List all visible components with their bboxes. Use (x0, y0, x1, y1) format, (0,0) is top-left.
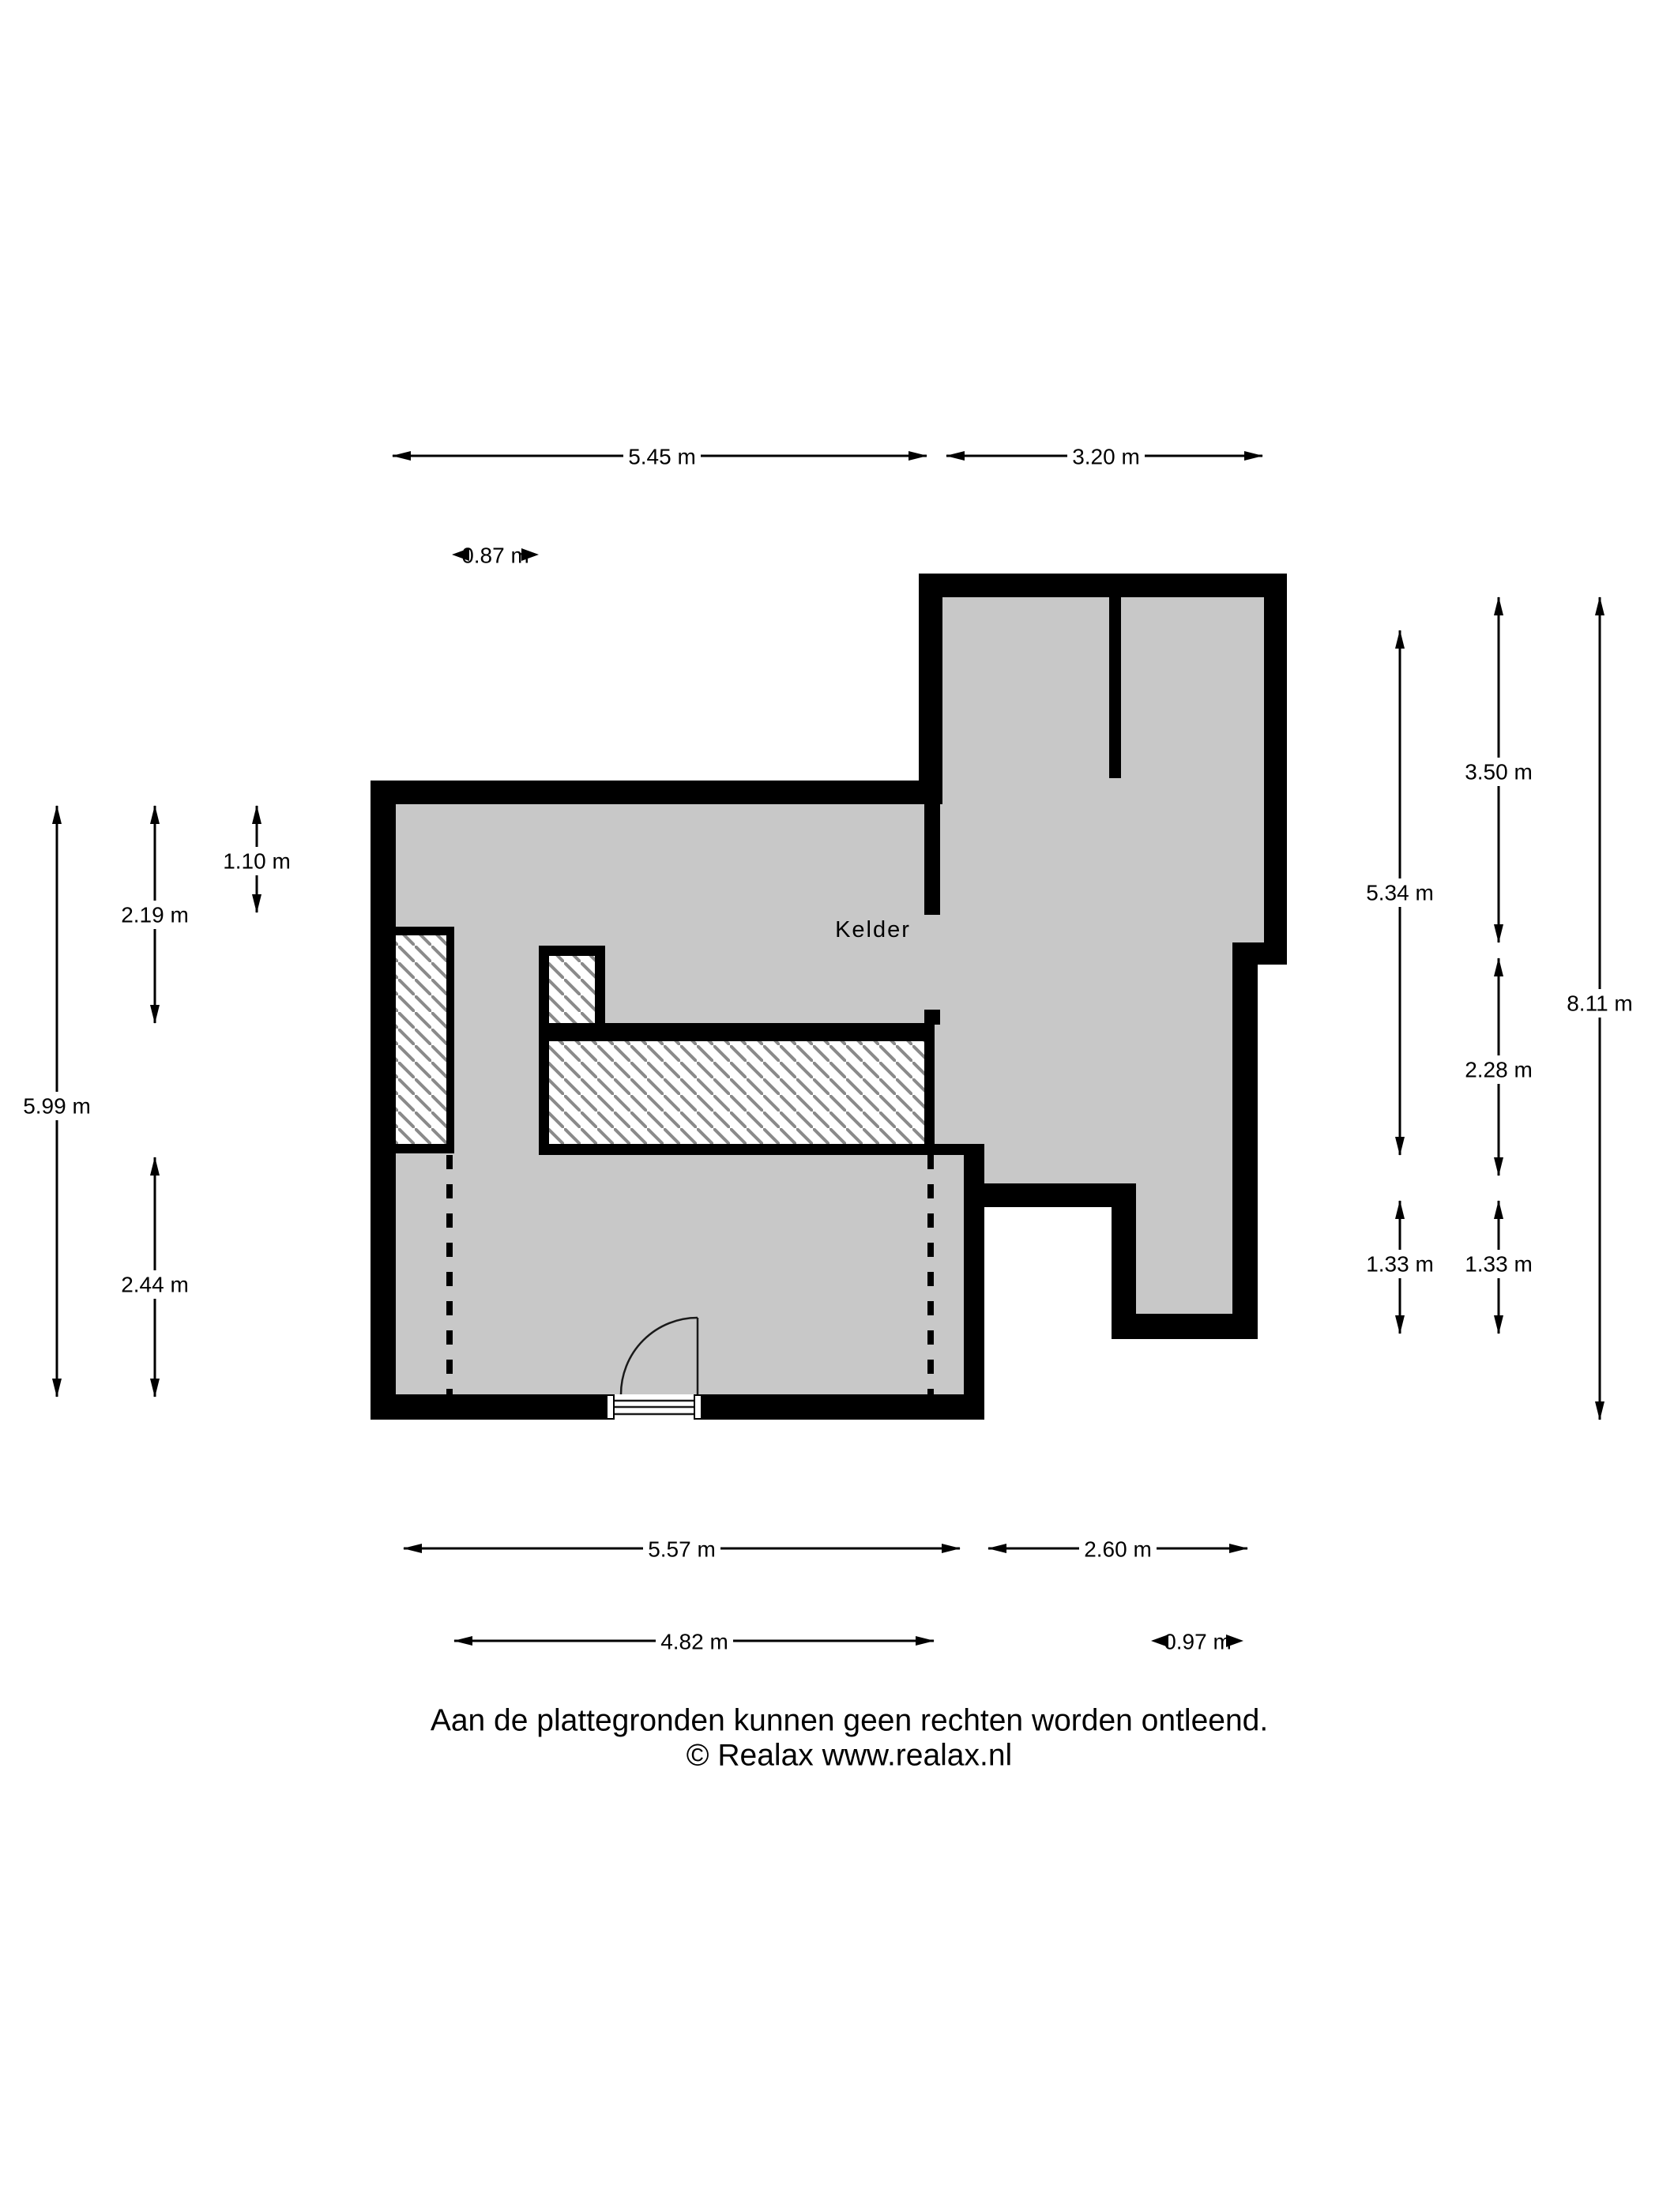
dimension-label: 5.34 m (1366, 881, 1434, 905)
dimension-label: 3.20 m (1072, 445, 1140, 469)
dimension-label: 2.28 m (1465, 1058, 1533, 1082)
hatch-stair-main (549, 1041, 924, 1144)
wall-main-bottom-left (371, 1394, 606, 1420)
wall-closet-bottom (396, 1144, 454, 1153)
footer-copyright: © Realax www.realax.nl (687, 1739, 1012, 1773)
wall-main-bottom-right (702, 1394, 984, 1420)
dimension-label: 2.19 m (121, 903, 189, 927)
wall-stair-right (924, 1023, 935, 1155)
dimension-label: 5.57 m (648, 1537, 716, 1562)
room-label: Kelder (835, 917, 911, 942)
door-jamb-left (607, 1395, 614, 1419)
wall-main-right (964, 1146, 984, 1420)
floor-right-room-upper (942, 597, 1264, 942)
dimension-label: 0.97 m (1164, 1630, 1232, 1654)
floorplan-canvas: Kelder 5.45 m 3.20 m 0.87 m 5.99 m 2.19 … (0, 0, 1659, 2212)
wall-main-top (371, 781, 942, 804)
dimension-label: 1.33 m (1366, 1252, 1434, 1277)
dimension-label: 1.33 m (1465, 1252, 1533, 1277)
wall-stairbox-right (595, 946, 605, 1023)
dimension-label: 3.50 m (1465, 760, 1533, 784)
dimension-gap-small: 0.87 m (452, 544, 539, 568)
hatch-left-closet (396, 935, 446, 1144)
wall-room-divider-stub (924, 1010, 940, 1025)
door-jamb-right (694, 1395, 702, 1419)
wall-stair-left (539, 1023, 549, 1155)
dimension-label: 0.87 m (461, 544, 529, 568)
wall-right-room-right-upper (1264, 574, 1287, 965)
footer-disclaimer: Aan de plattegronden kunnen geen rechten… (431, 1704, 1268, 1738)
wall-closet-top (396, 927, 454, 935)
wall-stair-top (539, 1023, 935, 1041)
wall-closet-right (446, 927, 454, 1153)
wall-extension-left (1112, 1183, 1136, 1339)
wall-right-room-right-lower (1232, 942, 1258, 1339)
dimension-bottom-small: 0.97 m (1151, 1630, 1243, 1654)
wall-stair-bottom (539, 1144, 984, 1155)
floorplan-page: Kelder 5.45 m 3.20 m 0.87 m 5.99 m 2.19 … (0, 0, 1659, 2212)
dimension-label: 4.82 m (660, 1630, 728, 1654)
dimension-label: 1.10 m (223, 849, 291, 874)
hatch-stair-upper (549, 956, 595, 1023)
wall-right-room-top (919, 574, 1287, 597)
floor-right-room-extension (1136, 942, 1232, 1314)
dimension-label: 8.11 m (1567, 991, 1633, 1016)
dimension-label: 2.44 m (121, 1273, 189, 1297)
wall-top-divider (1109, 597, 1121, 778)
dimension-label: 5.99 m (23, 1094, 91, 1119)
wall-main-left (371, 781, 396, 1420)
dimension-label: 5.45 m (628, 445, 696, 469)
wall-stairbox-left (539, 946, 549, 1023)
dimension-label: 2.60 m (1084, 1537, 1152, 1562)
wall-right-room-left (919, 574, 942, 804)
wall-room-divider-upper (924, 804, 940, 915)
